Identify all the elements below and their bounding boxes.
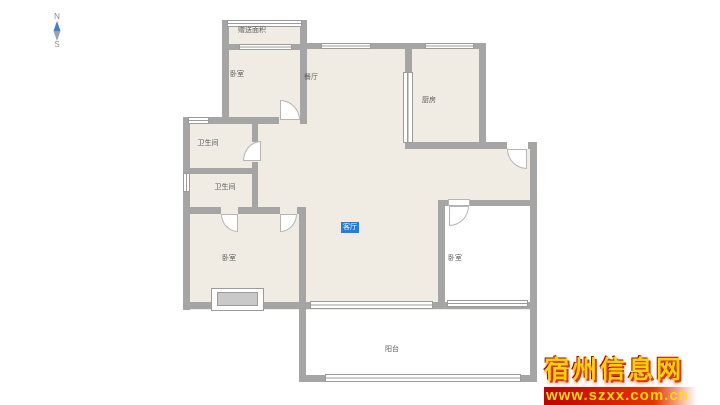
wall bbox=[252, 117, 258, 213]
window bbox=[447, 300, 528, 307]
bay-window-inner bbox=[217, 292, 258, 306]
room-label-kitchen: 厨房 bbox=[422, 96, 436, 105]
watermark-site-name: 宿州信息网 bbox=[544, 350, 704, 386]
room-label-bathroom-upper: 卫生间 bbox=[198, 139, 219, 148]
door-leaf bbox=[448, 199, 470, 206]
floorplan-canvas: N S bbox=[0, 0, 720, 405]
wall bbox=[438, 200, 445, 307]
window bbox=[183, 173, 190, 192]
wall bbox=[300, 20, 307, 124]
room-label-bedroom-right: 卧室 bbox=[448, 254, 462, 263]
room-label-balcony: 阳台 bbox=[385, 345, 399, 354]
room-label-bathroom-lower: 卫生间 bbox=[215, 183, 236, 192]
door-opening bbox=[221, 207, 238, 214]
entry-door-opening bbox=[507, 142, 528, 149]
room-label-bonus-area: 赠送面积 bbox=[238, 26, 266, 35]
compass-needle-icon bbox=[51, 21, 63, 41]
door-opening bbox=[280, 207, 297, 214]
sliding-door-kitchen bbox=[403, 72, 413, 143]
watermark-site-url: www.szxx.com.cn bbox=[544, 387, 697, 405]
compass: N S bbox=[44, 13, 70, 49]
window bbox=[325, 374, 521, 382]
room-label-bedroom-top: 卧室 bbox=[230, 70, 244, 79]
wall bbox=[299, 207, 306, 382]
window bbox=[425, 43, 474, 49]
room-label-dining: 餐厅 bbox=[304, 73, 318, 82]
wall bbox=[530, 142, 537, 382]
wall bbox=[183, 168, 258, 174]
compass-north-label: N bbox=[44, 13, 70, 21]
window bbox=[239, 44, 292, 50]
wall bbox=[479, 43, 486, 148]
room-label-living-selected[interactable]: 客厅 bbox=[341, 222, 359, 233]
compass-south-label: S bbox=[44, 41, 70, 49]
sliding-door-balcony bbox=[310, 301, 433, 309]
room-label-bedroom-left: 卧室 bbox=[222, 254, 236, 263]
window bbox=[321, 43, 371, 49]
window bbox=[188, 117, 209, 124]
floor-dining-kitchen bbox=[300, 43, 486, 150]
watermark: 宿州信息网 www.szxx.com.cn bbox=[544, 350, 704, 405]
wall bbox=[222, 20, 229, 120]
